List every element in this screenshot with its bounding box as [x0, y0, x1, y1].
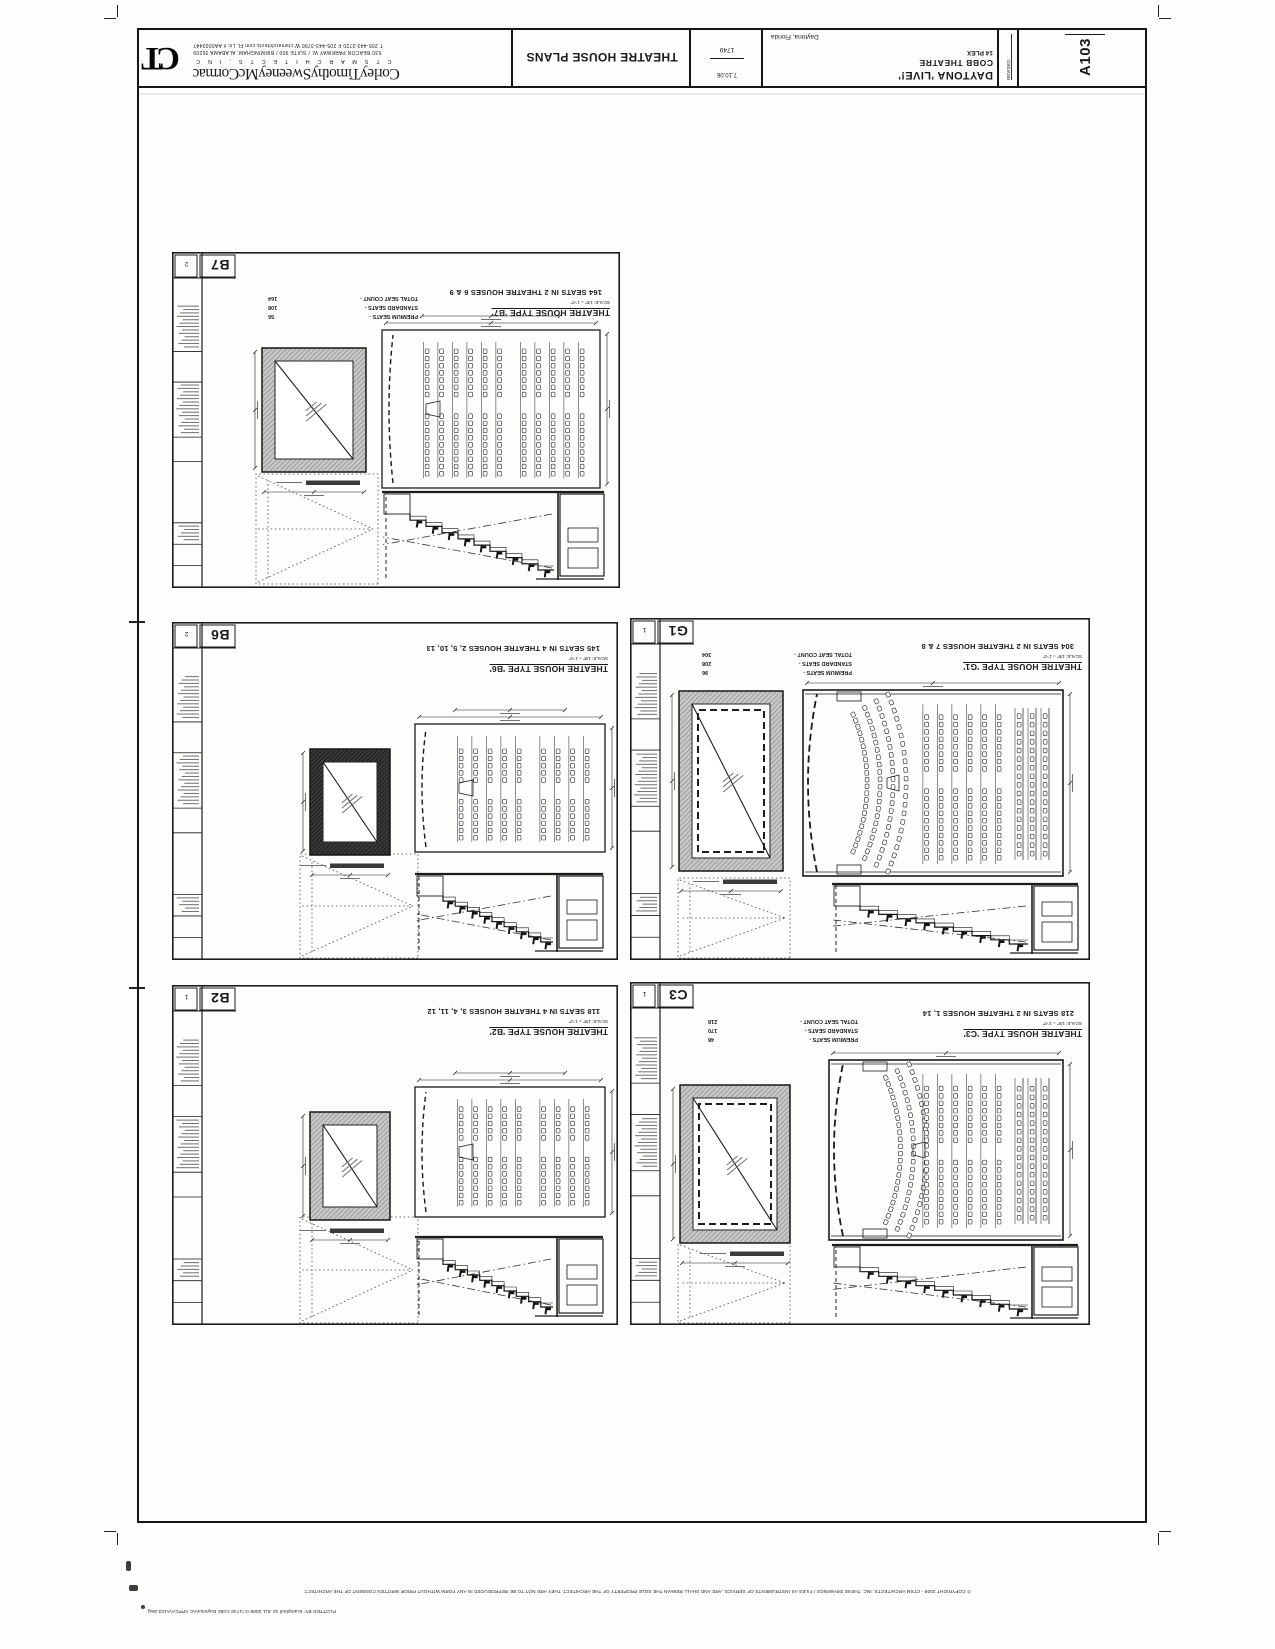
panel-seats-note: 304 SEATS IN 2 THEATRE HOUSES 7 & 8 [921, 642, 1074, 651]
date-cell-rule [710, 58, 744, 59]
date-cell: 7.10.06 1749 [691, 28, 763, 86]
panel-id-label: B2 [202, 990, 238, 1006]
panel-id-label: B7 [202, 257, 238, 273]
revised-cell: REVISED: [999, 28, 1019, 86]
count-value: 96 [702, 667, 708, 676]
title-block: A103 REVISED: DAYTONA 'LIVE!' COBB THEAT… [139, 28, 1145, 88]
panel-title: THEATRE HOUSE TYPE 'B6' [489, 664, 608, 674]
crop-mark [1159, 1531, 1171, 1532]
crop-mark [117, 5, 118, 17]
firm-contact: T 205-443-3720 F 205-443-3790 W ctsmarch… [193, 42, 505, 48]
seat-counts: PREMIUM SEATS -56 STANDARD SEATS -108 TO… [268, 294, 418, 320]
panel-scale: SCALE: 1/8" = 1'-0" [571, 300, 610, 305]
plot-stamp: PLOTTED BY: kcampbell 10 JUL 2008 G:\174… [148, 1608, 430, 1613]
ctsm-logo: CT [141, 34, 187, 82]
project-plex: 14 PLEX [767, 49, 993, 56]
border-tick [129, 621, 145, 623]
panel-ref-number: 1 [634, 626, 655, 633]
seat-counts: PREMIUM SEATS -96 STANDARD SEATS -208 TO… [702, 650, 852, 676]
panel-seats-note: 218 SEATS IN 2 THEATRE HOUSES 1, 14 [923, 1009, 1074, 1018]
count-label: TOTAL SEAT COUNT - [360, 294, 418, 303]
count-value: 108 [268, 302, 277, 311]
crop-mark [1158, 5, 1159, 17]
ink-smudge [129, 1585, 138, 1591]
panel-scale: SCALE: 1/8" = 1'-0" [569, 656, 608, 661]
panel-scale: SCALE: 1/8" = 1'-0" [1043, 654, 1082, 659]
scan-artifact [139, 93, 1145, 95]
firm-info: CorleyTimothySweeneyMcCormac C T S M A R… [193, 42, 505, 81]
crop-mark [1158, 1533, 1159, 1545]
sheet-number-rule [1065, 34, 1105, 35]
count-value: 304 [702, 650, 711, 659]
ink-smudge [126, 1561, 131, 1571]
panel-title: THEATRE HOUSE TYPE 'B7' [491, 308, 610, 318]
crop-mark [104, 18, 116, 19]
panel-ref-number: 2 [176, 260, 197, 267]
count-value: 208 [702, 658, 711, 667]
copyright-note: © COPYRIGHT 2008 - CTSM ARCHITECTS, INC.… [147, 1589, 1127, 1594]
panel-id-label: G1 [660, 623, 696, 639]
rotated-sheet-content: PLOTTED BY: kcampbell 10 JUL 2008 G:\174… [0, 0, 1275, 1649]
count-label: STANDARD SEATS - [365, 302, 418, 311]
issue-date: 7.10.06 [691, 71, 763, 77]
panel-ref-number: 2 [176, 630, 197, 637]
panel-B2: THEATRE HOUSE TYPE 'B2' SCALE: 1/8" = 1'… [172, 985, 618, 1325]
count-value: 48 [708, 1034, 714, 1043]
panel-seats-note: 118 SEATS IN 4 THEATRE HOUSES 3, 4, 11, … [427, 1007, 600, 1016]
border-tick [129, 987, 145, 989]
count-label: PREMIUM SEATS - [809, 1034, 858, 1043]
panel-B6: THEATRE HOUSE TYPE 'B6' SCALE: 1/8" = 1'… [172, 622, 618, 960]
project-name: DAYTONA 'LIVE!' [767, 69, 993, 81]
sheet-number: A103 [1062, 27, 1108, 87]
count-label: STANDARD SEATS - [805, 1025, 858, 1034]
project-building: COBB THEATRE [767, 58, 993, 68]
firm-subtitle: C T S M A R C H I T E C T S , I N C [193, 58, 505, 64]
firm-name: CorleyTimothySweeneyMcCormac [193, 65, 505, 81]
count-label: PREMIUM SEATS - [803, 667, 852, 676]
panel-title: THEATRE HOUSE TYPE 'C3' [963, 1029, 1082, 1039]
crop-mark [117, 1533, 118, 1545]
panel-scale: SCALE: 1/8" = 1'-0" [1043, 1021, 1082, 1026]
firm-address: 530 BEACON PARKWAY W. / SUITE 900 / BIRM… [193, 49, 505, 55]
count-label: STANDARD SEATS - [799, 658, 852, 667]
crop-mark [104, 1531, 116, 1532]
count-value: 164 [268, 294, 277, 303]
count-value: 218 [708, 1017, 717, 1026]
panel-B7: THEATRE HOUSE TYPE 'B7' SCALE: 1/8" = 1'… [172, 252, 620, 588]
panel-ref-number: 1 [634, 990, 655, 997]
panel-seats-note: 164 SEATS IN 2 THEATRE HOUSES 6 & 9 [449, 288, 602, 297]
project-location: Daytona, Florida [771, 33, 819, 40]
panel-title: THEATRE HOUSE TYPE 'B2' [489, 1027, 608, 1037]
panel-C3: THEATRE HOUSE TYPE 'C3' SCALE: 1/8" = 1'… [630, 982, 1090, 1325]
count-value: 170 [708, 1025, 717, 1034]
project-cell: DAYTONA 'LIVE!' COBB THEATRE 14 PLEX Day… [767, 31, 993, 81]
count-label: PREMIUM SEATS - [369, 311, 418, 320]
count-value: 56 [268, 311, 274, 320]
panel-G1: THEATRE HOUSE TYPE 'G1' SCALE: 1/8" = 1'… [630, 618, 1090, 960]
panel-title: THEATRE HOUSE TYPE 'G1' [963, 662, 1082, 672]
count-label: TOTAL SEAT COUNT - [794, 650, 852, 659]
sheet-title: THEATRE HOUSE PLANS [513, 28, 691, 86]
panel-ref-number: 1 [176, 993, 197, 1000]
revised-label: REVISED: [1006, 34, 1012, 80]
panel-id-label: C3 [660, 987, 696, 1003]
crop-mark [1159, 18, 1171, 19]
panel-scale: SCALE: 1/8" = 1'-0" [569, 1019, 608, 1024]
drawing-sheet-page: PLOTTED BY: kcampbell 10 JUL 2008 G:\174… [0, 0, 1275, 1649]
seat-counts: PREMIUM SEATS -48 STANDARD SEATS -170 TO… [708, 1017, 858, 1043]
project-number: 1749 [691, 46, 763, 53]
count-label: TOTAL SEAT COUNT - [800, 1017, 858, 1026]
ink-smudge [141, 1605, 145, 1609]
panel-seats-note: 145 SEATS IN 4 THEATRE HOUSES 2, 5, 10, … [426, 644, 600, 653]
panel-id-label: B6 [202, 627, 238, 643]
